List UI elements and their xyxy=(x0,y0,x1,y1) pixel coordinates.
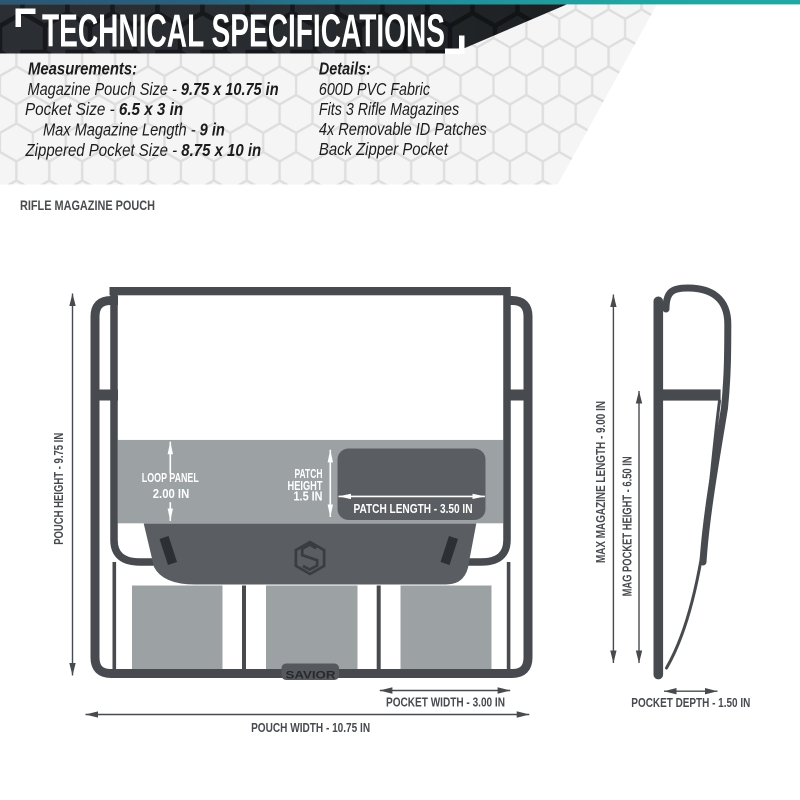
svg-text:2.00 IN: 2.00 IN xyxy=(153,486,190,501)
svg-text:POCKET DEPTH - 1.50 IN: POCKET DEPTH - 1.50 IN xyxy=(631,695,750,710)
svg-text:Details:: Details: xyxy=(319,59,371,79)
svg-text:4x Removable ID Patches: 4x Removable ID Patches xyxy=(319,120,487,140)
svg-text:SAVIOR: SAVIOR xyxy=(286,670,336,682)
svg-text:1.5 IN: 1.5 IN xyxy=(294,489,323,504)
svg-text:RIFLE MAGAZINE POUCH: RIFLE MAGAZINE POUCH xyxy=(20,198,155,213)
svg-text:POUCH WIDTH - 10.75 IN: POUCH WIDTH - 10.75 IN xyxy=(251,720,370,735)
svg-text:Measurements:: Measurements: xyxy=(28,59,137,78)
svg-text:Magazine Pouch Size - 9.75 x 1: Magazine Pouch Size - 9.75 x 10.75 in xyxy=(28,80,279,100)
svg-text:MAX MAGAZINE LENGTH - 9.00 IN: MAX MAGAZINE LENGTH - 9.00 IN xyxy=(593,401,608,563)
svg-text:LOOP PANEL: LOOP PANEL xyxy=(142,470,199,485)
svg-text:TECHNICAL SPECIFICATIONS: TECHNICAL SPECIFICATIONS xyxy=(42,5,445,57)
svg-text:600D PVC Fabric: 600D PVC Fabric xyxy=(319,81,430,100)
svg-text:POUCH HEIGHT - 9.75 IN: POUCH HEIGHT - 9.75 IN xyxy=(51,433,66,545)
svg-text:PATCH LENGTH - 3.50 IN: PATCH LENGTH - 3.50 IN xyxy=(354,501,473,516)
svg-text:Max Magazine Length - 9 in: Max Magazine Length - 9 in xyxy=(43,120,225,140)
svg-text:MAG POCKET HEIGHT - 6.50 IN: MAG POCKET HEIGHT - 6.50 IN xyxy=(620,456,635,596)
svg-text:Pocket Size - 6.5 x 3 in: Pocket Size - 6.5 x 3 in xyxy=(25,100,183,119)
svg-text:Fits 3 Rifle Magazines: Fits 3 Rifle Magazines xyxy=(319,101,459,120)
svg-text:Zippered Pocket Size - 8.75 x: Zippered Pocket Size - 8.75 x 10 in xyxy=(25,141,262,160)
svg-text:Back Zipper Pocket: Back Zipper Pocket xyxy=(319,140,449,159)
svg-text:POCKET WIDTH - 3.00 IN: POCKET WIDTH - 3.00 IN xyxy=(386,695,505,710)
